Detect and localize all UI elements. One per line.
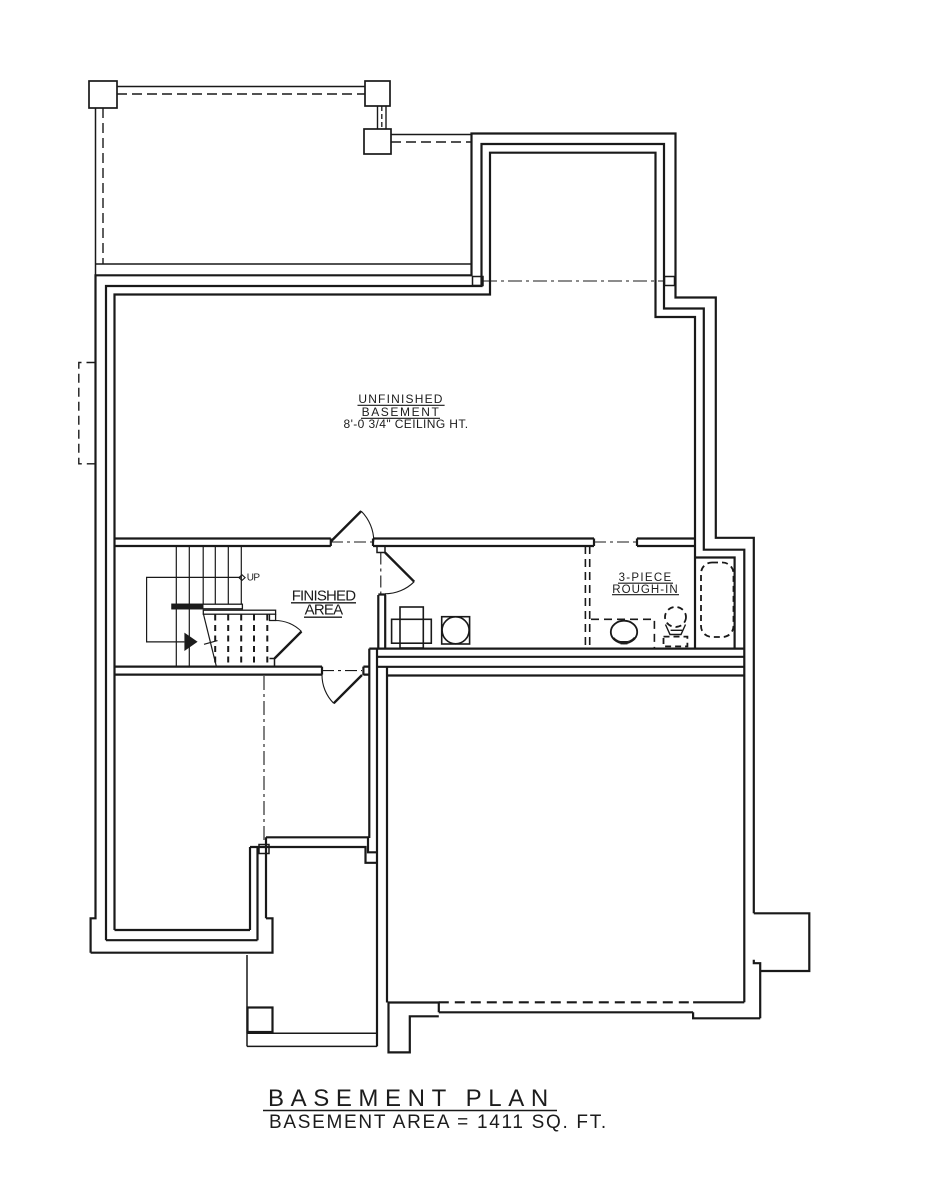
svg-text:BASEMENT AREA = 1411 SQ. FT.: BASEMENT AREA = 1411 SQ. FT. (269, 1112, 608, 1133)
svg-text:UNFINISHED: UNFINISHED (358, 392, 443, 406)
svg-text:BASEMENT PLAN: BASEMENT PLAN (268, 1085, 555, 1112)
svg-text:UP: UP (247, 573, 261, 584)
svg-text:8'-0 3/4" CEILING HT.: 8'-0 3/4" CEILING HT. (344, 417, 469, 431)
svg-text:3-PIECE: 3-PIECE (619, 572, 673, 584)
svg-text:AREA: AREA (305, 602, 343, 619)
